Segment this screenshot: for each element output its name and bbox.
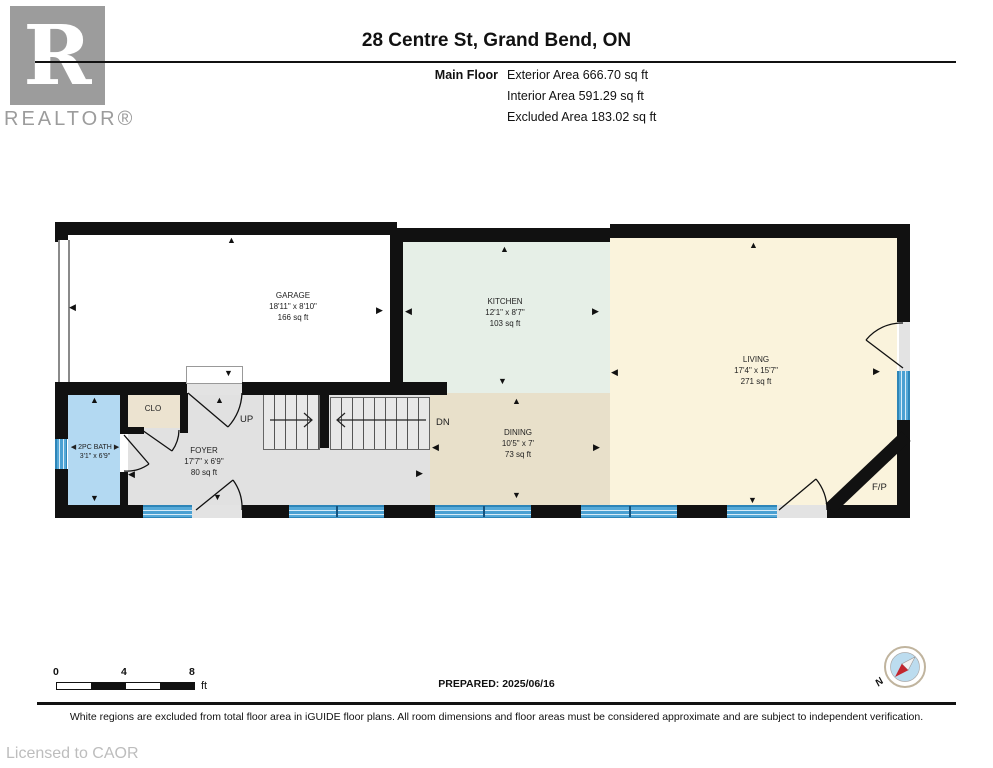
foyer-label: FOYER 17'7" x 6'9" 80 sq ft: [184, 446, 223, 478]
dining-area: 73 sq ft: [502, 450, 534, 461]
kitchen-dim-arrow-up: ▲: [500, 245, 509, 254]
garage-dim-arrow-left: ◀: [69, 303, 76, 312]
kitchen-label: KITCHEN 12'1" x 8'7" 103 sq ft: [485, 297, 524, 329]
dining-dim-arrow-left: ◀: [432, 443, 439, 452]
scale-tick-4: 4: [121, 666, 127, 678]
living-right-door-swing: [866, 323, 903, 368]
living-dim-arrow-down: ▼: [748, 496, 757, 505]
kitchen-dim-arrow-down: ▼: [498, 377, 507, 386]
bath-door-swing: [124, 435, 149, 471]
compass-icon: [879, 641, 931, 693]
dining-label: DINING 10'5" x 7' 73 sq ft: [502, 428, 534, 460]
kitchen-dim-arrow-left: ◀: [405, 307, 412, 316]
kitchen-dim-arrow-right: ▶: [592, 307, 599, 316]
bath-name-row: ◀ 2PC BATH ▶: [71, 443, 119, 452]
license-text: Licensed to CAOR: [6, 745, 139, 763]
garage-name: GARAGE: [269, 291, 317, 302]
living-dim-arrow-right: ▶: [873, 367, 880, 376]
garage-area: 166 sq ft: [269, 313, 317, 324]
foyer-dim-arrow-right: ▶: [416, 469, 423, 478]
closet-label: CLO: [145, 404, 161, 415]
patio-door-swing: [779, 479, 827, 510]
bath-label: ◀ 2PC BATH ▶ 3'1" x 6'9": [71, 443, 119, 462]
closet-door-swing: [142, 430, 179, 451]
bath-dim-arrow-left2: ◀: [71, 444, 76, 451]
foyer-dim-arrow-left: ◀: [128, 470, 135, 479]
bath-dim-arrow-down: ▼: [90, 494, 99, 503]
stairs-up-label: UP: [240, 414, 253, 425]
foyer-dims: 17'7" x 6'9": [184, 457, 223, 468]
garage-label: GARAGE 18'11" x 8'10" 166 sq ft: [269, 291, 317, 323]
living-label: LIVING 17'4" x 15'7" 271 sq ft: [734, 355, 778, 387]
floor-plan-page: R REALTOR® 28 Centre St, Grand Bend, ON …: [0, 0, 993, 768]
kitchen-name: KITCHEN: [485, 297, 524, 308]
dining-dims: 10'5" x 7': [502, 439, 534, 450]
scale-tick-8: 8: [189, 666, 195, 678]
disclaimer-text: White regions are excluded from total fl…: [0, 711, 993, 723]
bath-name: 2PC BATH: [78, 444, 112, 451]
dining-dim-arrow-down: ▼: [512, 491, 521, 500]
living-dim-arrow-up: ▲: [749, 241, 758, 250]
garage-dim-arrow-right: ▶: [376, 306, 383, 315]
kitchen-area: 103 sq ft: [485, 319, 524, 330]
dining-name: DINING: [502, 428, 534, 439]
kitchen-dims: 12'1" x 8'7": [485, 308, 524, 319]
dining-dim-arrow-right: ▶: [593, 443, 600, 452]
dining-dim-arrow-up: ▲: [512, 397, 521, 406]
living-dim-arrow-left: ◀: [611, 368, 618, 377]
foyer-area: 80 sq ft: [184, 468, 223, 479]
foyer-dim-arrow-down: ▼: [213, 493, 222, 502]
door-swings-overlay: [0, 0, 993, 768]
stairs-down-label: DN: [436, 417, 450, 428]
garage-dim-arrow-up: ▲: [227, 236, 236, 245]
scale-tick-0: 0: [53, 666, 59, 678]
stairs-up-arrow: [270, 413, 312, 427]
living-dims: 17'4" x 15'7": [734, 366, 778, 377]
bath-dim-arrow-right2: ▶: [114, 444, 119, 451]
prepared-date: PREPARED: 2025/06/16: [0, 678, 993, 690]
fireplace-label: F/P: [872, 482, 887, 493]
garage-dims: 18'11" x 8'10": [269, 302, 317, 313]
bath-dim-arrow-up: ▲: [90, 396, 99, 405]
living-area: 271 sq ft: [734, 377, 778, 388]
bath-dims: 3'1" x 6'9": [71, 452, 119, 461]
foyer-name: FOYER: [184, 446, 223, 457]
foyer-dim-arrow-up: ▲: [215, 396, 224, 405]
stairs-down-arrow: [337, 413, 426, 427]
footer-divider: [37, 702, 956, 705]
garage-dim-arrow-down: ▼: [224, 369, 233, 378]
living-name: LIVING: [734, 355, 778, 366]
